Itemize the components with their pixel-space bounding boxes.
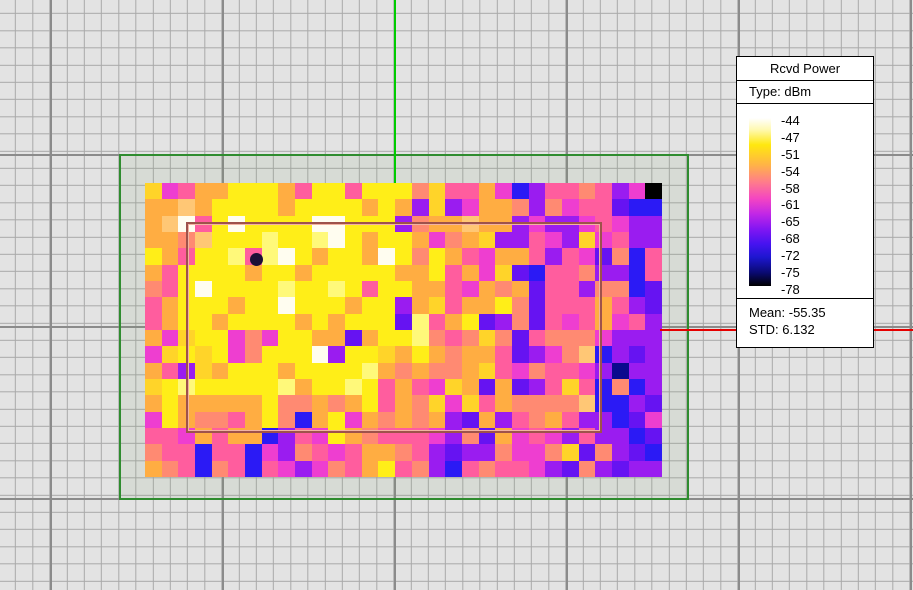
heatmap-cell [328,330,345,346]
heatmap-cell [378,444,395,460]
legend-gradient-area: -44-47-51-54-58-61-65-68-72-75-78 [737,104,873,298]
heatmap-cell [162,232,179,248]
heatmap-cell [378,395,395,411]
heatmap-cell [645,297,662,313]
heatmap-cell [479,363,496,379]
heatmap-cell [362,444,379,460]
heatmap-cell [228,330,245,346]
heatmap-cell [295,281,312,297]
heatmap-cell [612,428,629,444]
heatmap-cell [629,297,646,313]
heatmap-cell [545,363,562,379]
heatmap-cell [362,183,379,199]
heatmap-cell [328,395,345,411]
heatmap-cell [162,379,179,395]
heatmap-cell [579,248,596,264]
heatmap-cell [645,265,662,281]
legend-stats: Mean: -55.35 STD: 6.132 [737,298,873,338]
heatmap-cell [512,346,529,362]
heatmap-cell [245,428,262,444]
heatmap-cell [562,265,579,281]
heatmap-cell [328,314,345,330]
heatmap-cell [295,363,312,379]
heatmap-cell [579,297,596,313]
heatmap-cell [228,297,245,313]
heatmap-cell [629,248,646,264]
heatmap-cell [412,379,429,395]
heatmap-cell [562,248,579,264]
heatmap-cell [345,281,362,297]
heatmap-cell [529,363,546,379]
heatmap-cell [445,297,462,313]
heatmap-cell [345,314,362,330]
heatmap-cell [529,232,546,248]
heatmap-cell [228,346,245,362]
heatmap-cell [629,363,646,379]
heatmap-cell [495,183,512,199]
heatmap-cell [162,297,179,313]
heatmap-cell [312,461,329,477]
viewport-3d[interactable]: Rcvd Power Type: dBm -44-47-51-54-58-61-… [0,0,913,590]
heatmap-cell [595,232,612,248]
heatmap-cell [212,428,229,444]
heatmap-cell [378,232,395,248]
heatmap-cell [328,461,345,477]
heatmap-cell [228,248,245,264]
heatmap-cell [245,461,262,477]
heatmap-cell [529,330,546,346]
heatmap-cell [262,395,279,411]
heatmap-cell [278,265,295,281]
heatmap-cell [345,265,362,281]
vertical-axis-line [394,0,396,183]
heatmap-cell [395,346,412,362]
heatmap-cell [262,281,279,297]
heatmap-cell [462,379,479,395]
heatmap-cell [429,412,446,428]
heatmap-cell [395,281,412,297]
legend-mean-label: Mean: -55.35 [749,304,873,321]
heatmap-cell [562,363,579,379]
heatmap-cell [228,363,245,379]
heatmap-cell [162,330,179,346]
heatmap-cell [429,363,446,379]
heatmap-cell [629,183,646,199]
heatmap-cell [378,461,395,477]
heatmap-cell [529,265,546,281]
heatmap-cell [245,216,262,232]
heatmap-cell [645,363,662,379]
heatmap-cell [328,216,345,232]
heatmap-cell [312,248,329,264]
heatmap-cell [429,428,446,444]
heatmap-cell [228,395,245,411]
heatmap-cell [395,428,412,444]
heatmap-cell [412,216,429,232]
heatmap-cell [462,216,479,232]
heatmap-cell [445,232,462,248]
heatmap-cell [312,363,329,379]
heatmap-cell [445,346,462,362]
heatmap-cell [395,444,412,460]
heatmap-cell [645,232,662,248]
heatmap-cell [362,232,379,248]
heatmap-cell [162,265,179,281]
heatmap-cell [612,412,629,428]
heatmap-cell [228,232,245,248]
heatmap-cell [295,346,312,362]
heatmap-cell [595,461,612,477]
heatmap-cell [512,363,529,379]
heatmap-cell [412,395,429,411]
heatmap-cell [512,379,529,395]
heatmap-cell [529,461,546,477]
heatmap-cell [579,216,596,232]
heatmap-cell [645,330,662,346]
heatmap-cell [595,346,612,362]
heatmap-cell [645,199,662,215]
heatmap-cell [579,265,596,281]
heatmap-cell [162,444,179,460]
heatmap-cell [529,183,546,199]
heatmap-cell [145,248,162,264]
heatmap-cell [479,379,496,395]
heatmap-cell [228,379,245,395]
heatmap-cell [278,314,295,330]
heatmap-cell [412,297,429,313]
heatmap-cell [495,314,512,330]
heatmap-cell [412,232,429,248]
heatmap-cell [612,232,629,248]
heatmap-cell [512,265,529,281]
heatmap-cell [262,232,279,248]
heatmap-cell [429,183,446,199]
heatmap-cell [262,265,279,281]
heatmap-cell [595,216,612,232]
heatmap-cell [612,363,629,379]
heatmap-cell [178,444,195,460]
heatmap-cell [195,297,212,313]
heatmap-cell [479,216,496,232]
heatmap-cell [429,216,446,232]
heatmap-cell [178,412,195,428]
heatmap-cell [445,248,462,264]
heatmap-cell [579,330,596,346]
heatmap-cell [278,330,295,346]
heatmap-cell [462,363,479,379]
heatmap-cell [445,428,462,444]
heatmap-cell [195,232,212,248]
heatmap-cell [195,183,212,199]
heatmap-cell [395,248,412,264]
heatmap-cell [212,444,229,460]
heatmap-cell [479,183,496,199]
heatmap-cell [562,232,579,248]
heatmap-cell [629,379,646,395]
heatmap-cell [312,395,329,411]
heatmap-cell [412,346,429,362]
heatmap-cell [395,216,412,232]
heatmap-cell [595,314,612,330]
heatmap-cell [295,199,312,215]
heatmap-cell [178,232,195,248]
heatmap-cell [312,412,329,428]
heatmap-cell [262,346,279,362]
heatmap-cell [545,248,562,264]
heatmap-cell [412,363,429,379]
legend-panel[interactable]: Rcvd Power Type: dBm -44-47-51-54-58-61-… [736,56,874,348]
heatmap-cell [145,379,162,395]
heatmap-cell [195,346,212,362]
heatmap-cell [479,330,496,346]
heatmap-cell [645,444,662,460]
heatmap-cell [545,232,562,248]
heatmap-cell [145,281,162,297]
heatmap-cell [395,330,412,346]
heatmap-cell [328,281,345,297]
heatmap-cell [445,330,462,346]
heatmap-cell [495,461,512,477]
heatmap-cell [328,363,345,379]
heatmap-cell [495,265,512,281]
heatmap-cell [262,461,279,477]
heatmap-cell [612,183,629,199]
heatmap-cell [612,281,629,297]
heatmap-cell [212,330,229,346]
heatmap-cell [162,199,179,215]
heatmap-cell [512,232,529,248]
heatmap-cell [429,461,446,477]
heatmap-cell [195,379,212,395]
heatmap-cell [395,395,412,411]
heatmap-cell [328,346,345,362]
heatmap-cell [212,199,229,215]
heatmap-cell [429,444,446,460]
legend-tick-label: -68 [781,231,841,247]
heatmap-cell [395,265,412,281]
heatmap-cell [545,297,562,313]
heatmap-cell [162,412,179,428]
heatmap-cell [445,363,462,379]
heatmap-cell [345,363,362,379]
heatmap-cell [629,346,646,362]
heatmap-cell [595,248,612,264]
heatmap-cell [562,281,579,297]
grid-major-vline [50,0,52,590]
heatmap-cell [545,314,562,330]
heatmap-cell [462,444,479,460]
heatmap-cell [145,428,162,444]
heatmap-cell [429,395,446,411]
heatmap-cell [328,232,345,248]
heatmap-cell [395,461,412,477]
heatmap-cell [262,412,279,428]
transmitter-marker[interactable] [250,253,263,266]
heatmap-cell [312,232,329,248]
heatmap-cell [362,281,379,297]
heatmap-cell [178,330,195,346]
heatmap-cell [378,412,395,428]
heatmap-cell [645,379,662,395]
heatmap-cell [545,265,562,281]
heatmap-cell [345,330,362,346]
heatmap-cell [562,444,579,460]
heatmap-cell [412,428,429,444]
heatmap-cell [228,444,245,460]
heatmap-cell [462,232,479,248]
heatmap-cell [462,428,479,444]
heatmap-cell [412,412,429,428]
heatmap-cell [295,330,312,346]
heatmap-cell [512,395,529,411]
heatmap-cell [178,461,195,477]
heatmap-cell [278,428,295,444]
heatmap-cell [362,248,379,264]
heatmap-cell [645,183,662,199]
heatmap-cell [429,379,446,395]
heatmap-cell [545,216,562,232]
heatmap-cell [495,216,512,232]
heatmap-cell [278,412,295,428]
heatmap-cell [312,379,329,395]
heatmap-cell [545,428,562,444]
heatmap-cell [212,232,229,248]
heatmap-cell [462,346,479,362]
heatmap-cell [262,330,279,346]
heatmap-cell [245,412,262,428]
heatmap-cell [295,183,312,199]
heatmap-cell [629,330,646,346]
heatmap-cell [245,183,262,199]
heatmap-cell [362,216,379,232]
heatmap-cell [412,330,429,346]
heatmap-cell [612,248,629,264]
heatmap-cell [412,281,429,297]
heatmap-cell [545,395,562,411]
heatmap-cell [595,395,612,411]
heatmap-cell [445,395,462,411]
heatmap-cell [579,232,596,248]
heatmap-cell [445,461,462,477]
heatmap-cell [312,444,329,460]
heatmap-cell [145,395,162,411]
heatmap-cell [612,461,629,477]
heatmap-cell [412,265,429,281]
heatmap-cell [345,379,362,395]
heatmap-cell [395,363,412,379]
heatmap-cell [562,297,579,313]
heatmap-cell [562,346,579,362]
heatmap-cell [362,379,379,395]
heatmap-cell [295,297,312,313]
heatmap-cell [612,330,629,346]
heatmap-cell [145,232,162,248]
heatmap-cell [262,379,279,395]
heatmap-cell [462,199,479,215]
heatmap-cell [445,314,462,330]
heatmap-cell [612,346,629,362]
heatmap-cell [445,379,462,395]
heatmap-cell [445,412,462,428]
heatmap-cell [579,461,596,477]
heatmap-cell [512,461,529,477]
heatmap-cell [479,444,496,460]
heatmap-cell [579,363,596,379]
heatmap-cell [295,314,312,330]
heatmap-cell [595,183,612,199]
heatmap-cell [378,314,395,330]
heatmap-cell [195,330,212,346]
heatmap-cell [562,428,579,444]
heatmap-cell [629,444,646,460]
heatmap-cell [178,379,195,395]
heatmap-cell [479,428,496,444]
heatmap-cell [629,216,646,232]
heatmap-cell [378,216,395,232]
heatmap-cell [595,281,612,297]
heatmap-cell [529,281,546,297]
heatmap-cell [645,346,662,362]
heatmap-cell [529,248,546,264]
heatmap-cell [562,379,579,395]
heatmap-cell [195,444,212,460]
heatmap-cell [378,183,395,199]
heatmap-cell [195,412,212,428]
heatmap-cell [579,395,596,411]
heatmap-cell [529,216,546,232]
heatmap-cell [495,232,512,248]
legend-tick-label: -47 [781,130,841,146]
heatmap-cell [445,199,462,215]
heatmap-cell [295,395,312,411]
heatmap-cell [378,379,395,395]
heatmap-cell [228,314,245,330]
coverage-heatmap[interactable] [145,183,662,477]
heatmap-cell [529,379,546,395]
heatmap-cell [195,281,212,297]
heatmap-cell [612,314,629,330]
heatmap-cell [429,281,446,297]
heatmap-cell [529,412,546,428]
heatmap-cell [378,428,395,444]
heatmap-cell [445,183,462,199]
heatmap-cell [378,265,395,281]
heatmap-cell [562,330,579,346]
heatmap-cell [562,395,579,411]
heatmap-cell [395,314,412,330]
heatmap-cell [378,281,395,297]
heatmap-cell [462,248,479,264]
heatmap-cell [579,379,596,395]
heatmap-cell [629,232,646,248]
heatmap-cell [495,248,512,264]
heatmap-cell [362,314,379,330]
heatmap-cell [328,199,345,215]
heatmap-cell [345,395,362,411]
heatmap-cell [312,297,329,313]
heatmap-cell [145,314,162,330]
heatmap-cell [345,444,362,460]
heatmap-cell [412,183,429,199]
heatmap-cell [495,297,512,313]
heatmap-cell [245,281,262,297]
heatmap-cell [312,281,329,297]
heatmap-cell [495,330,512,346]
heatmap-cell [145,346,162,362]
heatmap-cell [212,346,229,362]
heatmap-cell [645,395,662,411]
heatmap-cell [178,216,195,232]
